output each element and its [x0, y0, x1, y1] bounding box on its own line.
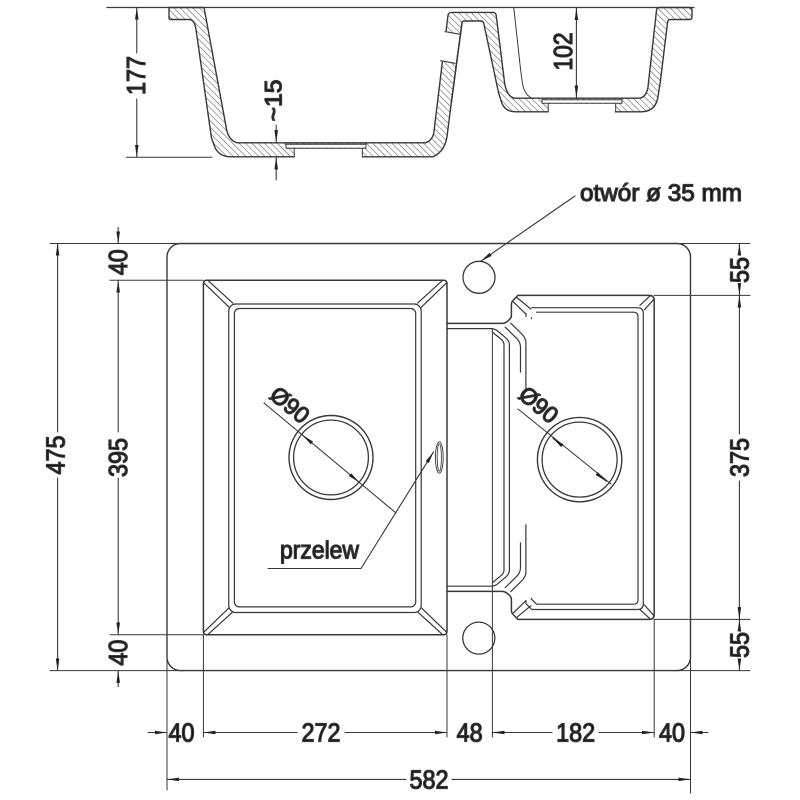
svg-text:395: 395	[103, 438, 133, 477]
svg-text:40: 40	[103, 249, 133, 275]
svg-text:182: 182	[556, 718, 595, 748]
svg-text:40: 40	[103, 640, 133, 666]
svg-text:375: 375	[724, 438, 754, 477]
svg-text:przelew: przelew	[280, 537, 360, 565]
svg-text:Ø90: Ø90	[265, 381, 315, 429]
svg-text:40: 40	[659, 718, 685, 748]
svg-text:102: 102	[548, 33, 578, 71]
svg-text:otwór ø 35 mm: otwór ø 35 mm	[580, 180, 742, 207]
svg-text:582: 582	[410, 765, 449, 795]
svg-text:177: 177	[121, 56, 151, 95]
svg-text:Ø90: Ø90	[514, 381, 564, 429]
svg-text:40: 40	[169, 718, 195, 748]
svg-text:~15: ~15	[260, 80, 287, 122]
svg-text:55: 55	[724, 632, 754, 658]
svg-text:55: 55	[724, 257, 754, 283]
svg-text:475: 475	[40, 436, 70, 475]
svg-text:48: 48	[457, 718, 483, 748]
svg-text:272: 272	[302, 718, 341, 748]
